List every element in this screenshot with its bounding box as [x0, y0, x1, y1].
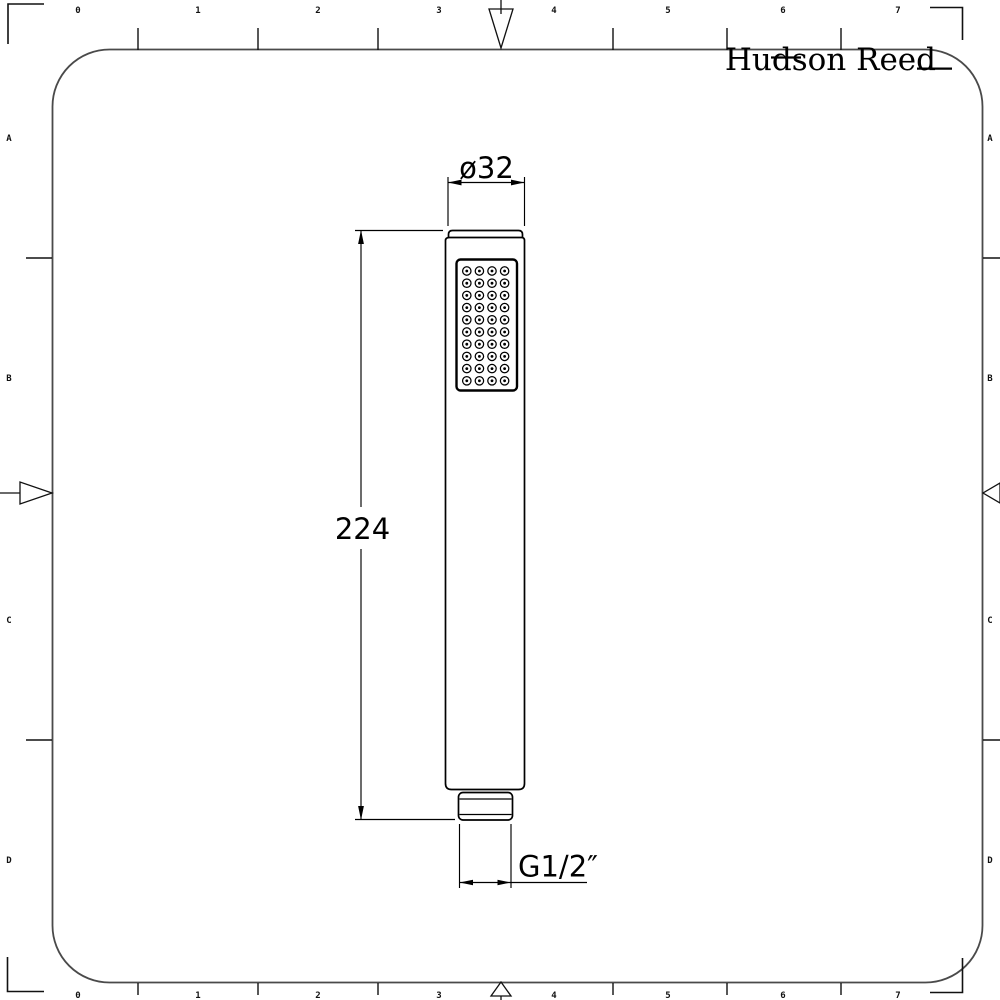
dimension-thread-arrow-right	[498, 880, 512, 886]
ruler-left-C: C	[6, 616, 11, 626]
nozzle-center-dot	[478, 270, 481, 273]
ruler-top-1: 1	[195, 6, 200, 16]
brand-logo: Hudson Reed	[725, 42, 952, 78]
nozzle-center-dot	[465, 318, 468, 321]
nozzle-center-dot	[503, 331, 506, 334]
dimension-length-arrow-top	[358, 230, 364, 244]
ruler-top-2: 2	[315, 6, 320, 16]
ruler-right-C: C	[987, 616, 992, 626]
dimension-length: 224	[335, 230, 455, 820]
nozzle-center-dot	[465, 306, 468, 309]
ruler-top-6: 6	[780, 6, 785, 16]
nozzle-center-dot	[491, 294, 494, 297]
centering-mark-right	[983, 483, 1000, 503]
ruler-ticks-right	[983, 258, 1000, 740]
ruler-left-A: A	[6, 134, 12, 144]
nozzle-center-dot	[491, 282, 494, 285]
ruler-bottom-5: 5	[665, 991, 670, 1000]
ruler-top-7: 7	[895, 6, 900, 16]
centering-mark-top	[489, 0, 513, 48]
nozzle-center-dot	[465, 379, 468, 382]
nozzle-center-dot	[465, 282, 468, 285]
ruler-right-A: A	[987, 134, 993, 144]
nozzle-center-dot	[503, 343, 506, 346]
nozzle-center-dot	[503, 282, 506, 285]
dimension-diameter-label: ø32	[459, 151, 514, 185]
nozzle-center-dot	[478, 294, 481, 297]
corner-mark-top-right	[930, 8, 963, 41]
nozzle-center-dot	[478, 343, 481, 346]
brand-logo-text: Hudson Reed	[725, 42, 936, 78]
ruler-ticks-bottom	[138, 983, 841, 995]
nozzle-center-dot	[503, 318, 506, 321]
nozzle-center-dot	[491, 343, 494, 346]
nozzle-center-dot	[503, 294, 506, 297]
thread-connector-nut	[459, 793, 513, 821]
nozzle-center-dot	[491, 306, 494, 309]
ruler-top-4: 4	[551, 6, 557, 16]
corner-mark-top-left	[8, 4, 44, 44]
nozzle-center-dot	[491, 367, 494, 370]
nozzle-center-dot	[478, 306, 481, 309]
corner-mark-bottom-right	[930, 958, 963, 993]
dimension-thread-extension-lines	[460, 824, 512, 888]
ruler-bottom-2: 2	[315, 991, 320, 1000]
nozzle-center-dot	[465, 355, 468, 358]
nozzle-center-dot	[465, 270, 468, 273]
ruler-ticks-left	[26, 258, 52, 740]
nozzle-center-dot	[503, 306, 506, 309]
nozzle-center-dot	[478, 379, 481, 382]
centering-mark-bottom	[491, 982, 511, 1000]
ruler-bottom-6: 6	[780, 991, 785, 1000]
ruler-top-0: 0	[75, 6, 80, 16]
nozzle-center-dot	[491, 270, 494, 273]
nozzle-center-dot	[491, 318, 494, 321]
technical-drawing-canvas: 0 1 2 3 4 5 6 7 0 1 2 3 4 5 6 7 A B C D …	[0, 0, 1000, 1000]
nozzle-center-dot	[491, 379, 494, 382]
ruler-right-B: B	[987, 374, 993, 384]
drawing-sheet: 0 1 2 3 4 5 6 7 0 1 2 3 4 5 6 7 A B C D …	[0, 0, 1000, 1000]
nozzle-center-dot	[478, 331, 481, 334]
dimension-thread-arrow-left	[460, 880, 474, 886]
ruler-bottom-7: 7	[895, 991, 900, 1000]
nozzle-center-dot	[478, 355, 481, 358]
ruler-left-B: B	[6, 374, 12, 384]
nozzle-center-dot	[465, 343, 468, 346]
dimension-diameter: ø32	[448, 151, 525, 226]
ruler-top-5: 5	[665, 6, 670, 16]
dimension-length-arrow-bottom	[358, 806, 364, 820]
nozzle-center-dot	[465, 294, 468, 297]
corner-mark-bottom-left	[8, 957, 45, 992]
ruler-bottom-0: 0	[75, 991, 80, 1000]
nozzle-center-dot	[491, 355, 494, 358]
nozzle-center-dot	[491, 331, 494, 334]
ruler-bottom-4: 4	[551, 991, 557, 1000]
nozzle-center-dot	[503, 367, 506, 370]
nozzle-center-dot	[465, 367, 468, 370]
centering-mark-left	[0, 482, 52, 504]
nozzle-center-dot	[503, 270, 506, 273]
dimension-thread-label: G1/2″	[518, 850, 598, 884]
ruler-top-3: 3	[436, 6, 441, 16]
shower-wand	[446, 231, 525, 821]
dimension-length-label: 224	[335, 512, 390, 546]
nozzle-center-dot	[465, 331, 468, 334]
ruler-bottom-3: 3	[436, 991, 441, 1000]
ruler-left-D: D	[6, 856, 12, 866]
nozzle-center-dot	[503, 379, 506, 382]
dimension-thread: G1/2″	[460, 824, 599, 888]
nozzle-center-dot	[503, 355, 506, 358]
nozzle-center-dot	[478, 367, 481, 370]
nozzle-center-dot	[478, 318, 481, 321]
ruler-bottom-1: 1	[195, 991, 200, 1000]
nozzle-center-dot	[478, 282, 481, 285]
ruler-right-D: D	[987, 856, 993, 866]
